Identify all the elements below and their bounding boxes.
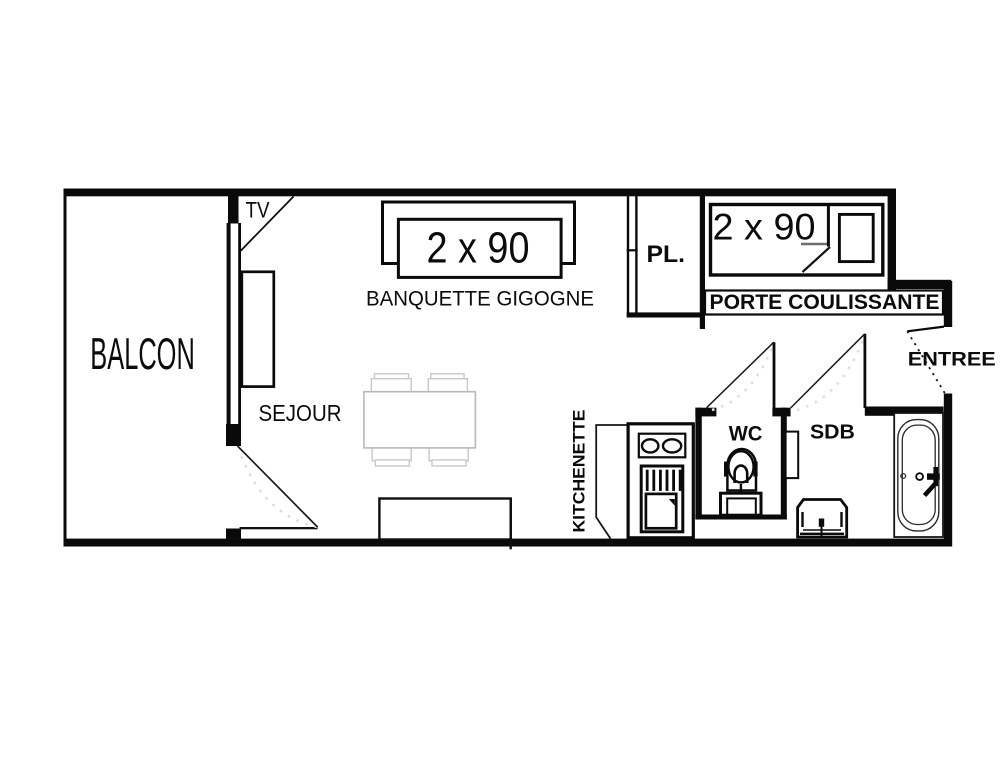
- svg-text:BANQUETTE GIGOGNE: BANQUETTE GIGOGNE: [366, 286, 594, 310]
- svg-text:ENTREE: ENTREE: [908, 349, 996, 371]
- svg-text:SEJOUR: SEJOUR: [259, 400, 342, 426]
- svg-text:2 x 90: 2 x 90: [427, 223, 530, 272]
- svg-text:PL.: PL.: [647, 241, 686, 268]
- svg-text:BALCON: BALCON: [90, 330, 195, 379]
- svg-text:2 x 90: 2 x 90: [713, 206, 816, 247]
- svg-text:KITCHENETTE: KITCHENETTE: [569, 410, 588, 533]
- svg-text:WC: WC: [729, 422, 763, 446]
- svg-text:PORTE COULISSANTE: PORTE COULISSANTE: [710, 289, 940, 314]
- svg-text:SDB: SDB: [810, 420, 855, 443]
- svg-text:TV: TV: [246, 198, 270, 223]
